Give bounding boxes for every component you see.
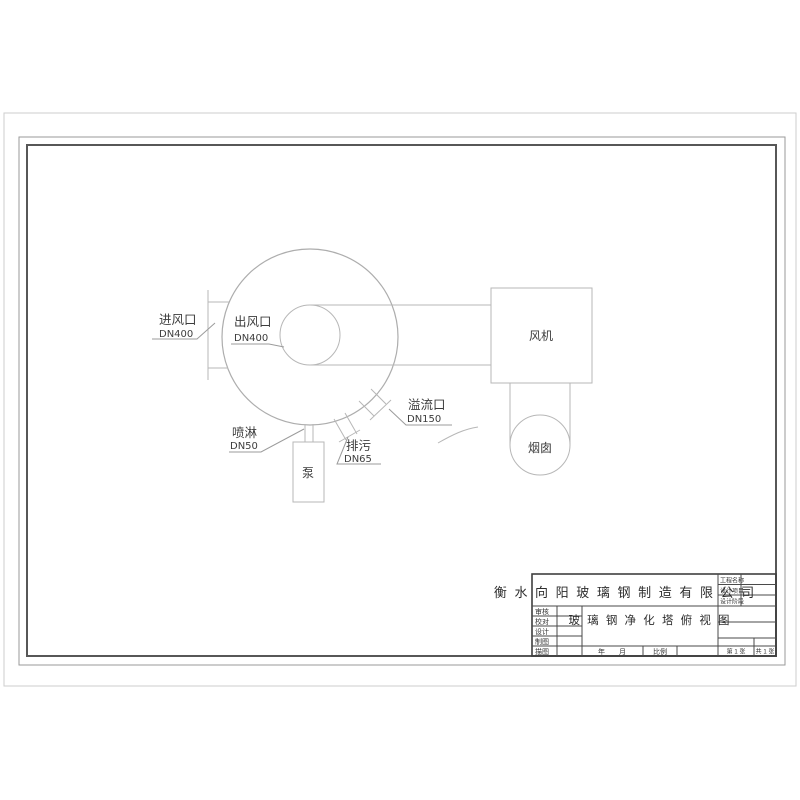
sheet-number-label: 第 1 张 (727, 648, 746, 656)
project-name-label: 工程名称 (720, 577, 744, 585)
overflow-size-label: DN150 (407, 414, 441, 425)
overflow-label: 溢流口 (408, 398, 446, 412)
chimney-label: 烟囱 (528, 441, 552, 455)
fan-label: 风机 (529, 329, 553, 343)
drain-label: 排污 (346, 439, 371, 453)
design-phase-label: 设计阶段 (720, 598, 744, 606)
drawing-sheet: 进风口 DN400 出风口 DN400 喷淋 DN50 排污 DN65 溢流口 … (0, 0, 800, 800)
outlet-size-label: DN400 (234, 333, 268, 344)
inlet-size-label: DN400 (159, 329, 193, 340)
sheet-total-label: 共 1 张 (756, 648, 775, 656)
drafting-label: 制图 (535, 637, 549, 646)
design-label: 设计 (535, 627, 549, 636)
design-item-label: 设计项目 (720, 587, 744, 595)
outlet-label: 出风口 (234, 315, 272, 329)
pump-label: 泵 (302, 466, 314, 480)
date-label: 年 月 (598, 647, 626, 656)
inlet-label: 进风口 (159, 313, 197, 327)
review-label: 审核 (535, 607, 549, 616)
tracing-label: 描图 (535, 647, 549, 656)
scale-label: 比例 (653, 647, 667, 656)
proofread-label: 校对 (535, 617, 549, 626)
company-name: 衡 水 向 阳 玻 璃 钢 制 造 有 限 公 司 (494, 585, 756, 600)
paper-edge (4, 113, 796, 686)
spray-size-label: DN50 (230, 441, 258, 452)
cad-canvas: 进风口 DN400 出风口 DN400 喷淋 DN50 排污 DN65 溢流口 … (0, 0, 800, 800)
spray-label: 喷淋 (232, 426, 258, 440)
drawing-title: 玻 璃 钢 净 化 塔 俯 视 图 (568, 613, 731, 627)
drain-size-label: DN65 (344, 454, 372, 465)
